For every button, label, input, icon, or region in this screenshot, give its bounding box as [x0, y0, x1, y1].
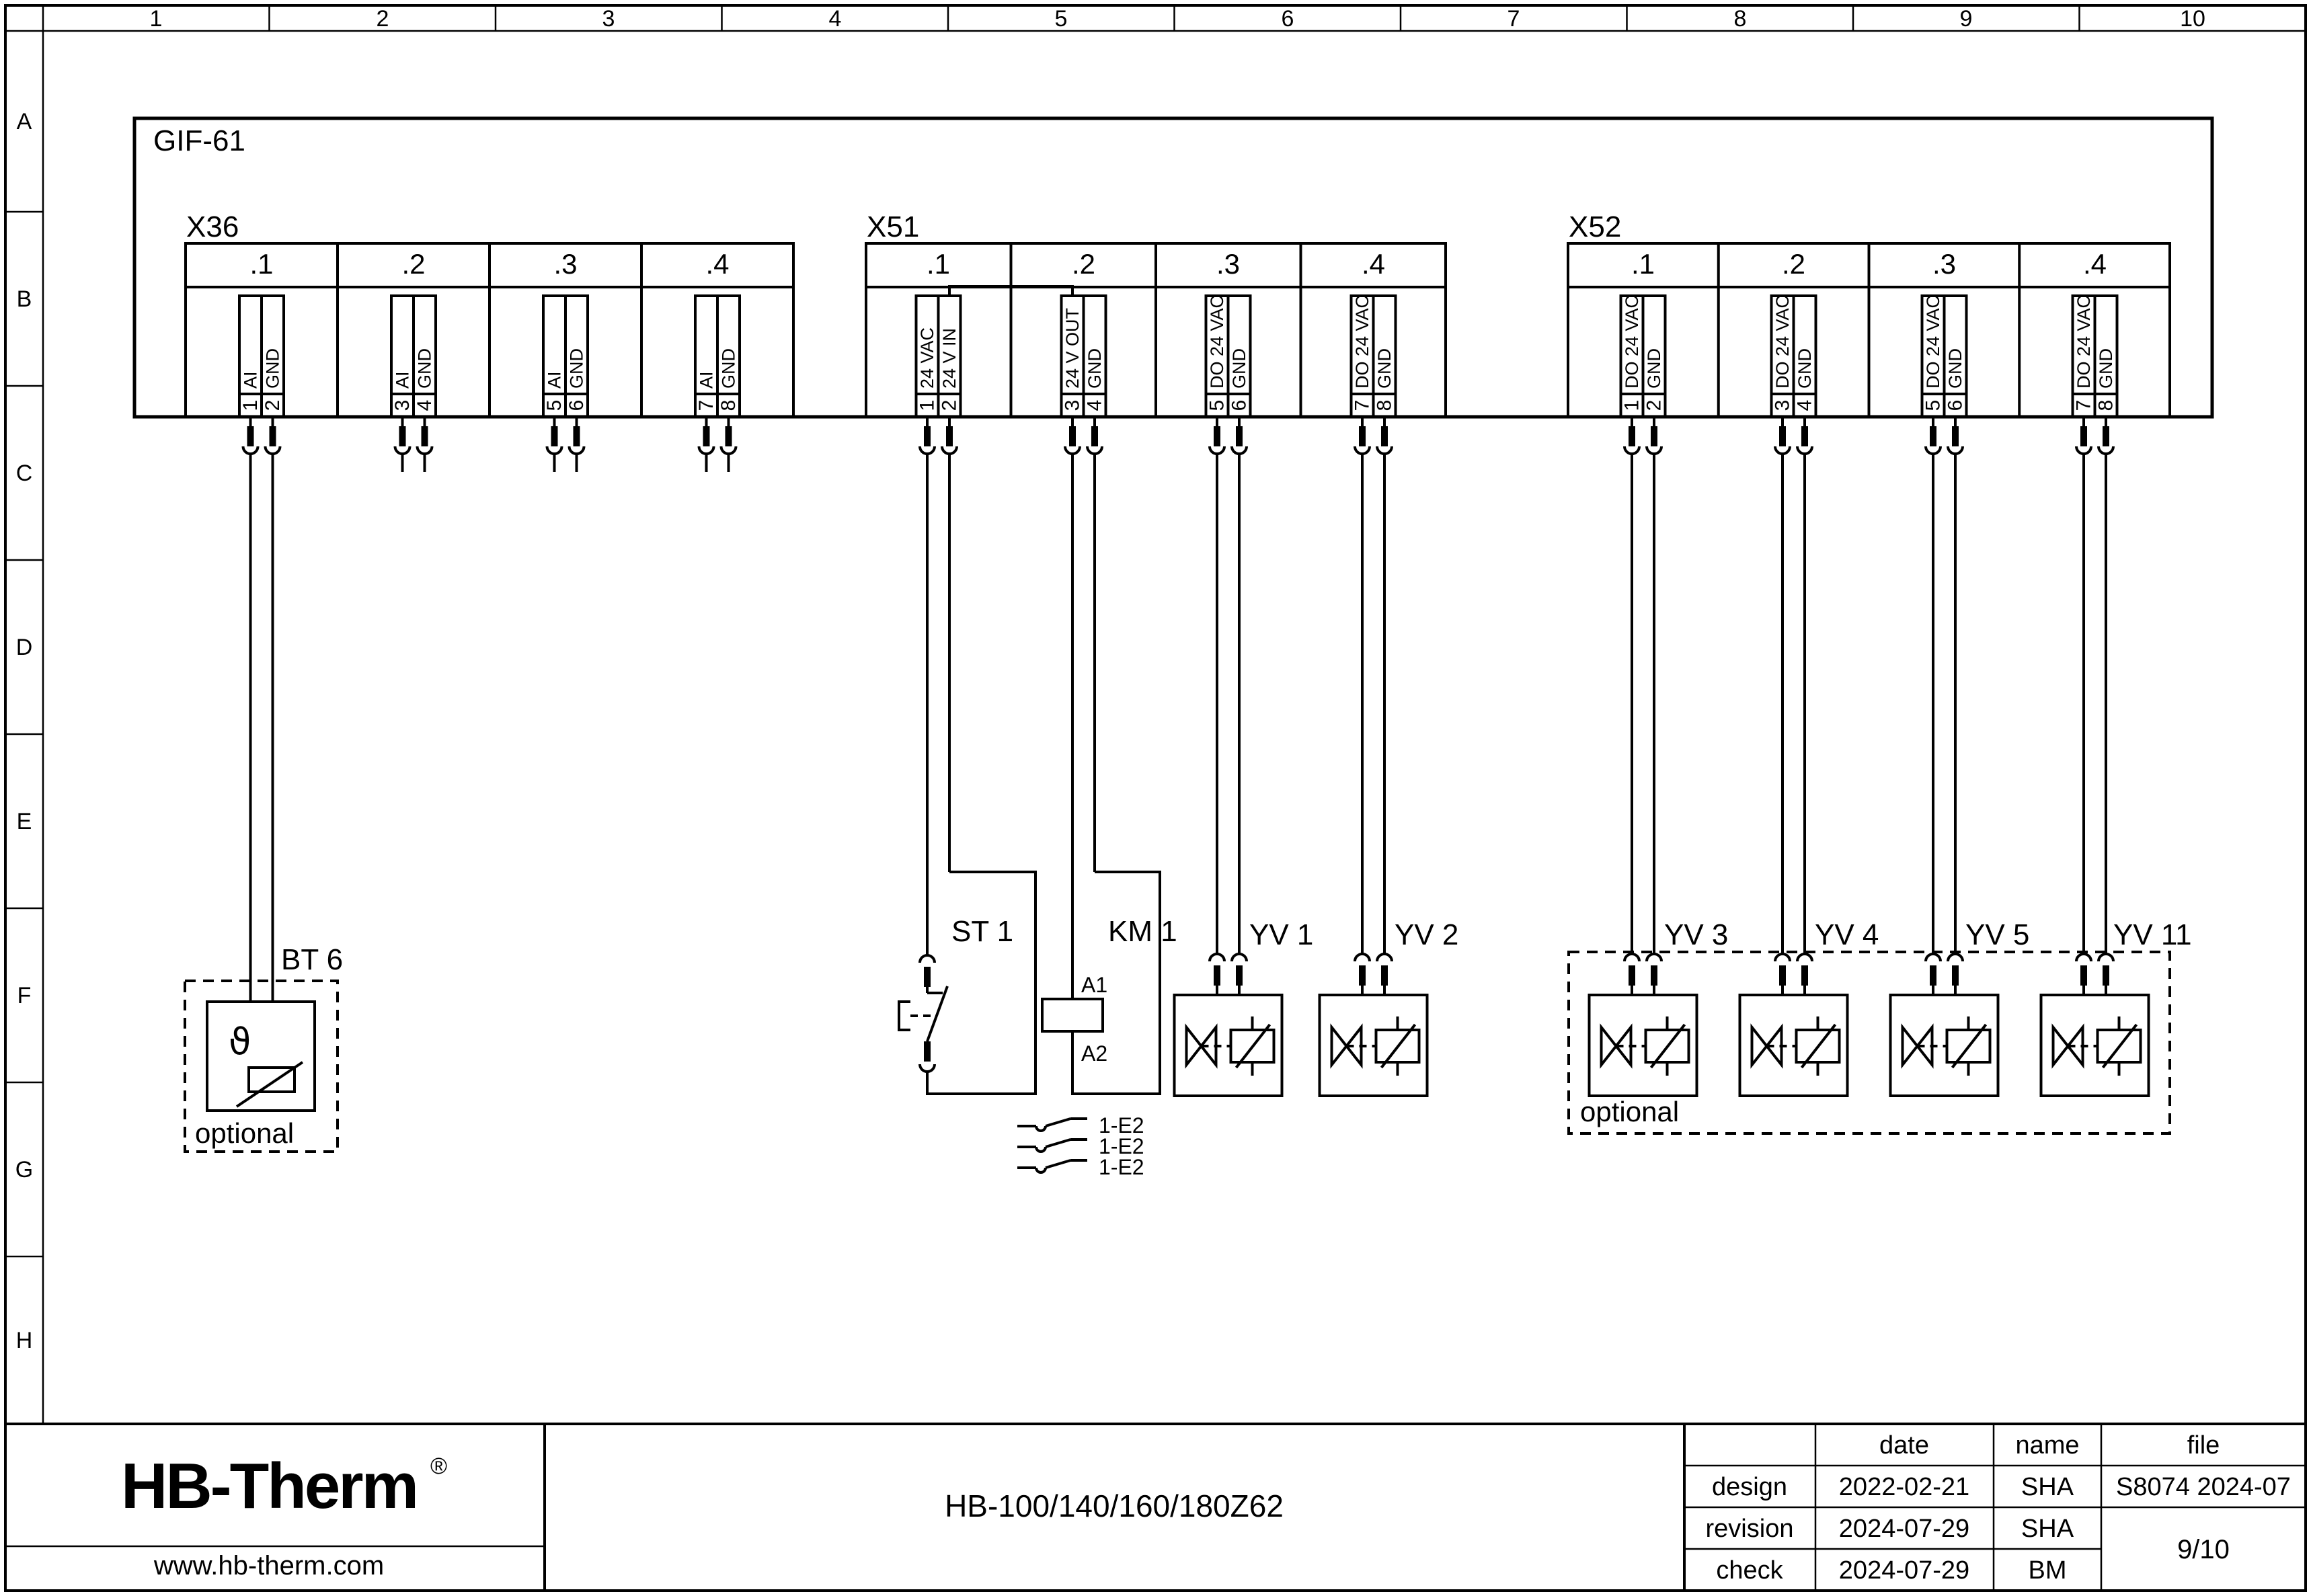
plug-icon [247, 426, 254, 446]
terminal-pin-cell [239, 296, 262, 417]
pin-number: 1 [916, 400, 939, 411]
pin-signal: DO 24 VAC [1352, 295, 1372, 389]
x51-cell-label: .3 [1216, 248, 1240, 280]
column-ruler-label: 10 [2180, 6, 2205, 32]
pin-number: 8 [1374, 400, 1396, 411]
check-date: 2024-07-29 [1839, 1556, 1969, 1585]
manual-actuator-icon [899, 1002, 910, 1030]
socket-icon [699, 446, 714, 454]
plug-icon [1236, 965, 1243, 986]
x51-cell-label: .2 [1072, 248, 1095, 280]
km1-terminal-a1: A1 [1081, 973, 1107, 997]
plug-icon [1236, 426, 1243, 446]
socket-icon [920, 955, 935, 963]
design-label: design [1712, 1473, 1787, 1501]
temperature-theta-icon: ϑ [229, 1021, 251, 1063]
plug-icon [1359, 965, 1366, 986]
x51-label: X51 [867, 210, 919, 243]
plug-icon [1801, 965, 1808, 986]
plug-icon [1214, 426, 1220, 446]
pin-signal: GND [719, 348, 739, 389]
optional-valve-group: optional [1569, 952, 2170, 1133]
socket-icon [1232, 954, 1247, 961]
socket-icon [1624, 954, 1639, 961]
pin-signal: GND [1374, 348, 1395, 389]
socket-icon [1926, 954, 1941, 961]
socket-icon [1065, 446, 1080, 454]
socket-icon [243, 446, 258, 454]
pin-signal: GND [1085, 348, 1105, 389]
pin-number: 3 [1772, 400, 1794, 411]
plug-icon [399, 426, 406, 446]
yv2-label: YV 2 [1395, 918, 1458, 951]
x36-cell-label: .2 [401, 248, 425, 280]
pin-signal: AI [241, 371, 261, 389]
connector-x52: X52 .1 .2 .3 .4 DO 24 VAC GND DO 24 VAC … [1568, 210, 2170, 417]
terminal-pin-cell [695, 296, 717, 417]
column-ruler-label: 1 [150, 6, 163, 32]
connector-x36: X36 .1 .2 .3 .4 AI GND AI GND AI GND AI … [186, 210, 793, 417]
pin-number: 4 [1794, 400, 1816, 411]
registered-trademark-icon: ® [430, 1453, 447, 1479]
pin-signal: DO 24 VAC [1772, 295, 1793, 389]
column-ruler-label: 5 [1055, 6, 1068, 32]
pin-signal: DO 24 VAC [2074, 295, 2094, 389]
plug-icon [1214, 965, 1220, 986]
plug-icon [1359, 426, 1366, 446]
pin-number: 2 [262, 400, 284, 411]
contact-socket-icon [1036, 1168, 1046, 1172]
socket-icon [1355, 446, 1370, 454]
yv5-label: YV 5 [1965, 918, 2029, 951]
contact-blade [1046, 1119, 1070, 1126]
socket-icon [1377, 446, 1392, 454]
valve-labels: YV 1 YV 2 YV 3 YV 4 YV 5 YV 11 [1249, 918, 2192, 951]
pin-number: 3 [391, 400, 414, 411]
pin-number: 1 [239, 400, 262, 411]
column-ruler-label: 8 [1734, 6, 1747, 32]
module-label: GIF-61 [153, 124, 245, 157]
pin-number: 7 [695, 400, 717, 411]
pin-signal: DO 24 VAC [1923, 295, 1943, 389]
nc-contact-blade [927, 986, 947, 1041]
socket-icon [942, 446, 957, 454]
x52-cell-label: .3 [1932, 248, 1956, 280]
socket-icon [1948, 446, 1963, 454]
pin-number: 6 [1945, 400, 1967, 411]
plug-icon [1779, 426, 1786, 446]
socket-icon [920, 446, 935, 454]
column-ruler: 1 2 3 4 5 6 7 8 9 10 [150, 6, 2205, 32]
plug-icon [1091, 426, 1098, 446]
website-link: www.hb-therm.com [153, 1551, 384, 1581]
plug-icon [1629, 426, 1635, 446]
revision-label: revision [1706, 1515, 1794, 1543]
plug-icon [1651, 426, 1657, 446]
yv3-label: YV 3 [1664, 918, 1728, 951]
gif-61-module-box: GIF-61 [134, 118, 2212, 417]
plug-icon [1381, 426, 1388, 446]
contact-socket-icon [1036, 1147, 1046, 1152]
pin-number: 2 [1643, 400, 1666, 411]
column-ruler-label: 4 [829, 6, 842, 32]
plug-icon [1651, 965, 1657, 986]
plug-icon [551, 426, 558, 446]
schematic-sheet: 1 2 3 4 5 6 7 8 9 10 A B C D E F G H GIF… [0, 0, 2311, 1596]
plug-icon [2080, 426, 2087, 446]
x52-cell-label: .4 [2083, 248, 2107, 280]
plug-icon [1930, 426, 1936, 446]
socket-icon [1210, 446, 1224, 454]
check-label: check [1716, 1556, 1783, 1585]
pin-number: 4 [1084, 400, 1106, 411]
pin-signal: AI [697, 371, 717, 389]
pin-signal: GND [263, 348, 283, 389]
component-st1: ST 1 [899, 915, 1013, 1072]
row-ruler-label: G [15, 1157, 33, 1183]
row-ruler-label: D [16, 635, 33, 660]
pin-number: 6 [565, 400, 588, 411]
socket-icon [1948, 954, 1963, 961]
component-km1: KM 1 A1 A2 [1042, 915, 1177, 1066]
pin-number: 5 [1922, 400, 1945, 411]
socket-icon [2076, 954, 2091, 961]
pin-number: 5 [543, 400, 565, 411]
row-ruler-label: C [16, 461, 33, 486]
terminal-pin-cell [543, 296, 565, 417]
socket-icon [418, 446, 432, 454]
socket-icon [1377, 954, 1392, 961]
plug-icon [1930, 965, 1936, 986]
x52-cell-label: .2 [1782, 248, 1805, 280]
socket-icon [1087, 446, 1102, 454]
plug-icon [2103, 426, 2109, 446]
contactor-coil-icon [1042, 999, 1103, 1031]
km1-terminal-a2: A2 [1081, 1041, 1107, 1066]
plug-icon [270, 426, 276, 446]
socket-icon [1797, 446, 1812, 454]
plug-icon [574, 426, 580, 446]
revision-name: SHA [2021, 1515, 2074, 1543]
socket-icon [570, 446, 584, 454]
km1-label: KM 1 [1108, 915, 1177, 948]
pin-signal: GND [1945, 348, 1965, 389]
column-ruler-label: 2 [377, 6, 389, 32]
pin-number: 8 [2095, 400, 2117, 411]
column-ruler-label: 6 [1282, 6, 1294, 32]
wiring-diagram-canvas: 1 2 3 4 5 6 7 8 9 10 A B C D E F G H GIF… [0, 0, 2311, 1596]
plug-icon [1952, 426, 1959, 446]
pin-signal: 24 V OUT [1062, 308, 1083, 389]
pin-number: 3 [1062, 400, 1084, 411]
pin-signal: DO 24 VAC [1622, 295, 1642, 389]
row-ruler-label: E [17, 809, 32, 834]
plug-icon [703, 426, 710, 446]
bt6-optional-note: optional [195, 1117, 294, 1149]
socket-icon [721, 446, 736, 454]
yv1-label: YV 1 [1249, 918, 1313, 951]
socket-icon [2099, 954, 2113, 961]
row-ruler-label: F [17, 983, 32, 1008]
pin-signal: AI [545, 371, 565, 389]
st1-label: ST 1 [951, 915, 1013, 948]
drawing-title: HB-100/140/160/180Z62 [945, 1488, 1284, 1523]
socket-icon [2099, 446, 2113, 454]
check-name: BM [2029, 1556, 2067, 1585]
x36-label: X36 [186, 210, 239, 243]
plug-icon [1069, 426, 1076, 446]
design-name: SHA [2021, 1473, 2074, 1501]
pin-signal: GND [1795, 348, 1815, 389]
title-block: HB-Therm ® www.hb-therm.com HB-100/140/1… [5, 1424, 2306, 1591]
plug-icon [924, 426, 931, 446]
socket-icon [920, 1064, 935, 1072]
plug-icon [924, 1041, 931, 1062]
contact-blade [1046, 1160, 1070, 1168]
socket-icon [2076, 446, 2091, 454]
socket-icon [395, 446, 410, 454]
pin-number: 8 [717, 400, 740, 411]
pin-number: 5 [1206, 400, 1228, 411]
contact-socket-icon [1036, 1126, 1046, 1131]
plug-icon [1801, 426, 1808, 446]
socket-icon [547, 446, 562, 454]
pin-signal: DO 24 VAC [1207, 295, 1227, 389]
row-ruler-label: A [17, 109, 32, 134]
plug-icon [1381, 965, 1388, 986]
pin-number: 4 [414, 400, 436, 411]
socket-icon [1647, 954, 1661, 961]
pin-signal: GND [567, 348, 587, 389]
socket-icon [1624, 446, 1639, 454]
bt6-label: BT 6 [281, 943, 343, 976]
plug-icon [2080, 965, 2087, 986]
pin-number: 7 [1352, 400, 1374, 411]
socket-icon [1797, 954, 1812, 961]
yv4-label: YV 4 [1815, 918, 1879, 951]
socket-icon [1210, 954, 1224, 961]
plug-icon [924, 967, 931, 987]
row-ruler: A B C D E F G H [15, 109, 33, 1353]
contact-blade [1046, 1140, 1070, 1147]
column-ruler-label: 9 [1960, 6, 1973, 32]
socket-icon [1775, 954, 1790, 961]
socket-icon [1926, 446, 1941, 454]
x52-cell-label: .1 [1631, 248, 1655, 280]
pin-number: 1 [1621, 400, 1643, 411]
x36-cell-label: .3 [553, 248, 577, 280]
x36-cell-label: .1 [249, 248, 273, 280]
plug-icon [422, 426, 428, 446]
plug-icon [1952, 965, 1959, 986]
socket-icon [1232, 446, 1247, 454]
row-ruler-label: B [17, 286, 32, 312]
socket-icon [266, 446, 280, 454]
x36-cell-label: .4 [705, 248, 729, 280]
x52-label: X52 [1569, 210, 1621, 243]
x51-cell-label: .4 [1362, 248, 1385, 280]
pin-number: 6 [1228, 400, 1251, 411]
socket-icon [1355, 954, 1370, 961]
column-ruler-label: 3 [602, 6, 615, 32]
pin-signal: 24 V IN [939, 328, 959, 389]
file-value: S8074 2024-07 [2116, 1473, 2291, 1501]
pin-signal: 24 VAC [917, 327, 937, 389]
revision-date: 2024-07-29 [1839, 1515, 1969, 1543]
plug-icon [1779, 965, 1786, 986]
plug-icon [726, 426, 732, 446]
col-header-date: date [1879, 1431, 1929, 1460]
contact-ref: 1-E2 [1099, 1155, 1144, 1179]
col-header-file: file [2187, 1431, 2220, 1460]
optional-group-note: optional [1580, 1096, 1679, 1127]
column-ruler-label: 7 [1507, 6, 1520, 32]
row-ruler-label: H [16, 1328, 33, 1353]
col-header-name: name [2015, 1431, 2079, 1460]
page-number: 9/10 [2177, 1535, 2230, 1564]
terminal-pin-cell [391, 296, 414, 417]
pin-number: 2 [939, 400, 961, 411]
pin-number: 7 [2073, 400, 2095, 411]
pin-signal: GND [1229, 348, 1249, 389]
plug-icon [2103, 965, 2109, 986]
pin-signal: AI [393, 371, 413, 389]
design-date: 2022-02-21 [1839, 1473, 1969, 1501]
plug-icon [1629, 965, 1635, 986]
yv11-label: YV 11 [2113, 918, 2192, 951]
component-bt6: BT 6 ϑ optional [185, 943, 343, 1152]
socket-icon [1647, 446, 1661, 454]
pin-signal: GND [415, 348, 435, 389]
x51-cell-label: .1 [927, 248, 950, 280]
connector-x51: X51 .1 .2 .3 .4 24 VAC 24 V IN 24 V OUT … [866, 210, 1446, 417]
pin-signal: GND [2096, 348, 2116, 389]
km1-aux-contacts: 1-E2 1-E2 1-E2 [1099, 1113, 1144, 1179]
hb-therm-logo: HB-Therm [121, 1450, 417, 1522]
pin-signal: GND [1644, 348, 1664, 389]
socket-icon [1775, 446, 1790, 454]
bt6-sensor-box [207, 1002, 315, 1111]
wire [927, 872, 1035, 1094]
plug-icon [946, 426, 953, 446]
